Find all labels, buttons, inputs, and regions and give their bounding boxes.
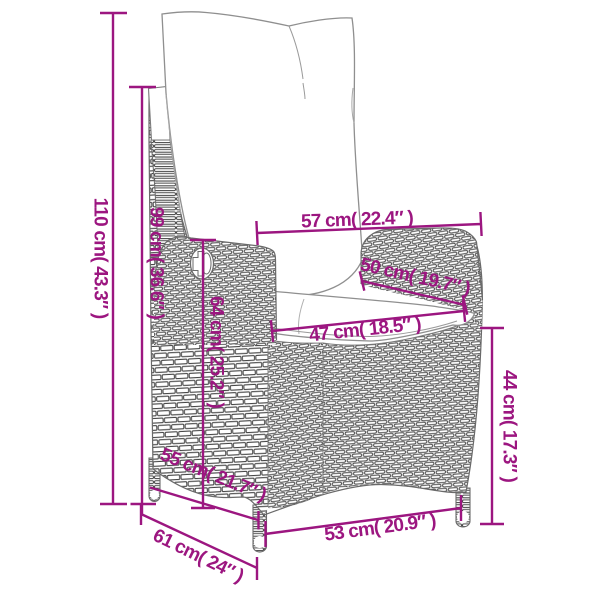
svg-text:110 cm( 43.3″ ): 110 cm( 43.3″ ) [90, 198, 111, 319]
svg-text:57 cm( 22.4″ ): 57 cm( 22.4″ ) [301, 208, 414, 233]
svg-text:64 cm( 25.2″ ): 64 cm( 25.2″ ) [206, 296, 227, 408]
svg-text:44 cm( 17.3″ ): 44 cm( 17.3″ ) [499, 370, 520, 482]
svg-text:99 cm( 36.6″ ): 99 cm( 36.6″ ) [146, 207, 167, 319]
